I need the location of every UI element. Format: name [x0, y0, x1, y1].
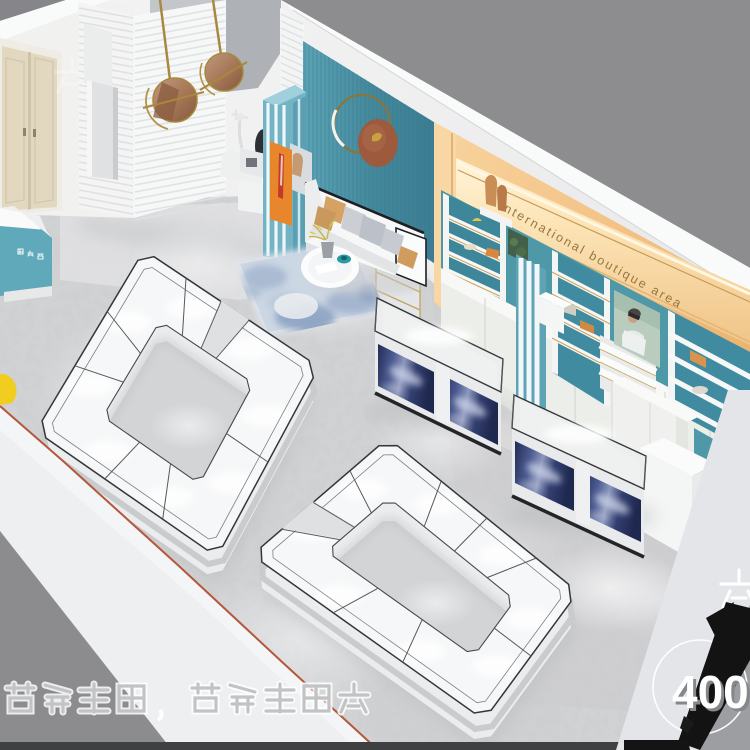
- svg-text:400–: 400–: [672, 666, 750, 718]
